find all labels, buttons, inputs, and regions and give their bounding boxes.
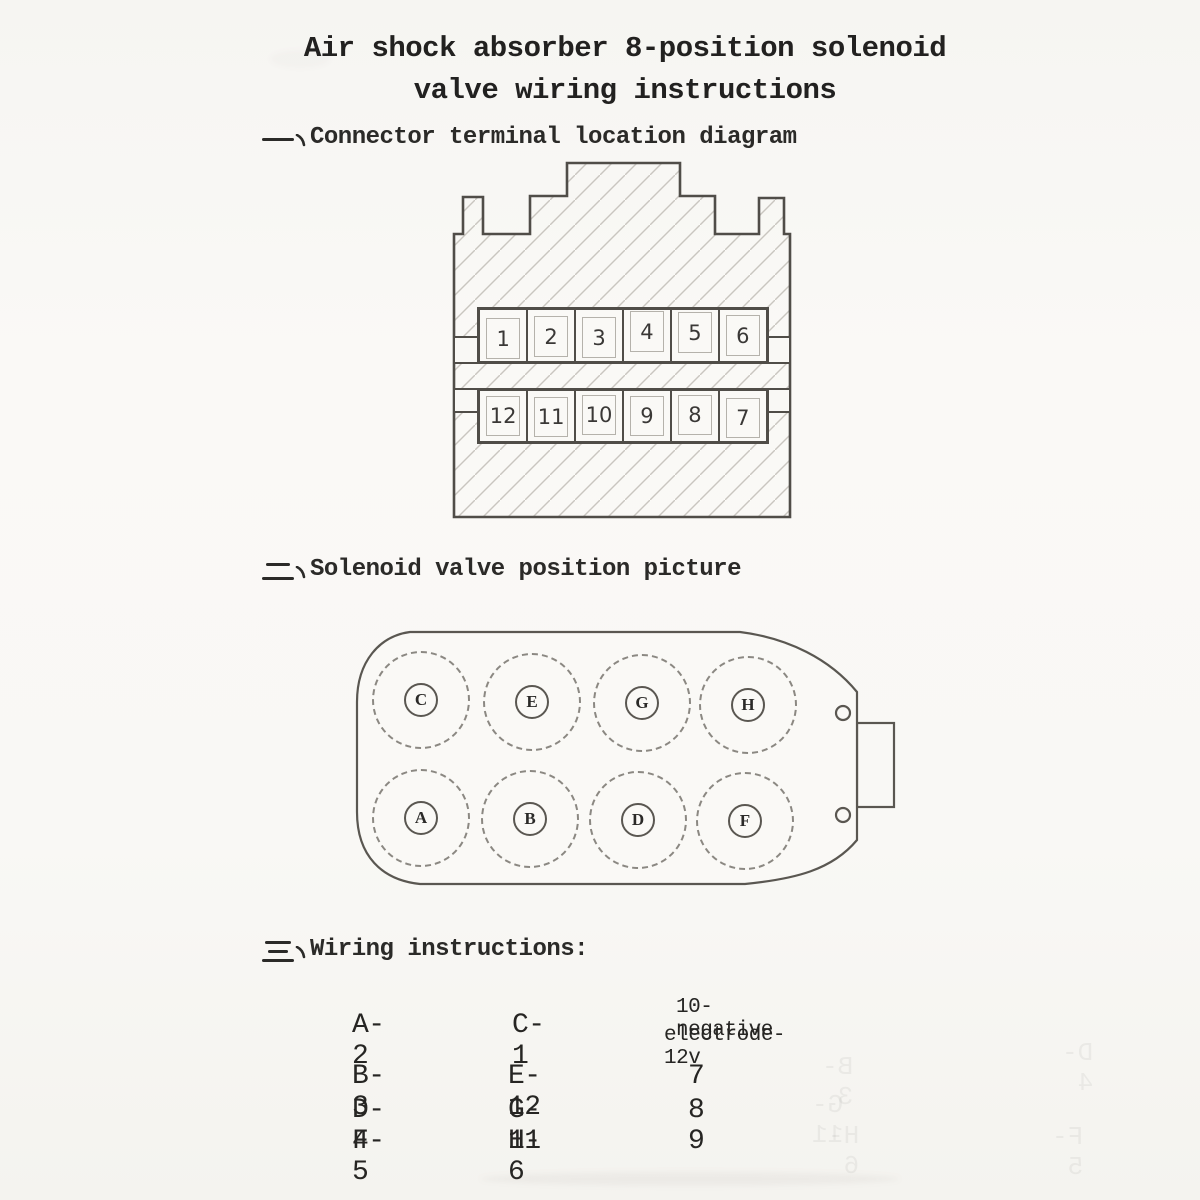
section-1-heading: Connector terminal location diagram [262,124,797,154]
terminal-number: 9 [630,396,664,436]
valve-side-tab [857,723,894,807]
solenoid-letter: H [741,695,754,715]
solenoid-letter: E [526,692,537,712]
solenoid-circle: D [621,803,655,837]
solenoid-circle: G [625,686,659,720]
ghost-text: F-5 [1052,1122,1083,1182]
terminal-number: 3 [582,317,616,358]
terminal-row-bottom: 121110987 [478,389,768,443]
wiring-value: 7 [688,1061,704,1092]
scanned-instruction-sheet: Air shock absorber 8-position solenoid v… [0,0,1200,1200]
terminal-number: 2 [534,316,568,357]
ideographic-comma-icon [295,946,308,960]
cjk-marker-two [262,556,310,586]
terminal-number: 8 [678,395,712,435]
solenoid-letter: F [740,811,750,831]
terminal-cell: 7 [718,389,768,443]
ideographic-comma-icon [295,566,308,580]
cjk-marker-three [262,936,310,966]
terminal-number: 5 [678,312,712,353]
solenoid-letter: B [524,809,535,829]
ghost-text: H-6 [828,1121,859,1181]
solenoid-circle: H [731,688,765,722]
section-2-heading: Solenoid valve position picture [262,556,741,586]
terminal-cell: 10 [574,389,624,443]
wiring-note-line2: electrode-12v [664,1024,785,1070]
ghost-text: D-4 [1062,1038,1093,1098]
section-2-heading-text: Solenoid valve position picture [310,556,741,583]
solenoid-letter: G [635,693,648,713]
solenoid-circle: A [404,801,438,835]
page-title-line1: Air shock absorber 8-position solenoid [50,28,1200,70]
terminal-number: 10 [582,395,616,435]
terminal-number: 4 [630,311,664,352]
terminal-cell: 5 [670,308,720,363]
wiring-value: 8 [688,1095,704,1126]
terminal-cell: 1 [478,308,528,363]
solenoid-letter: C [415,690,427,710]
solenoid-circle: E [515,685,549,719]
terminal-number: 6 [726,315,760,356]
solenoid-letter: D [632,810,644,830]
wiring-value: 9 [688,1126,704,1157]
page-title-line2: valve wiring instructions [50,70,1200,112]
terminal-number: 11 [534,397,568,437]
terminal-cell: 6 [718,308,768,363]
terminal-cell: 12 [478,389,528,443]
solenoid-circle: F [728,804,762,838]
terminal-cell: 9 [622,389,672,443]
wiring-pair: F-5 [352,1126,385,1188]
section-3-heading: Wiring instructions: [262,936,588,966]
scan-smudge [270,50,330,68]
terminal-number: 12 [486,396,520,436]
terminal-cell: 11 [526,389,576,443]
terminal-number: 1 [486,318,520,359]
terminal-cell: 3 [574,308,624,363]
terminal-cell: 4 [622,308,672,363]
terminal-number: 7 [726,398,760,438]
solenoid-circle: C [404,683,438,717]
scan-smudge [480,1172,900,1186]
solenoid-circle: B [513,802,547,836]
terminal-cell: 2 [526,308,576,363]
cjk-marker-one [262,124,310,154]
terminal-cell: 8 [670,389,720,443]
solenoid-letter: A [415,808,427,828]
terminal-row-top: 123456 [478,308,768,363]
section-1-heading-text: Connector terminal location diagram [310,124,797,151]
ideographic-comma-icon [295,134,308,148]
section-3-heading-text: Wiring instructions: [310,936,588,963]
